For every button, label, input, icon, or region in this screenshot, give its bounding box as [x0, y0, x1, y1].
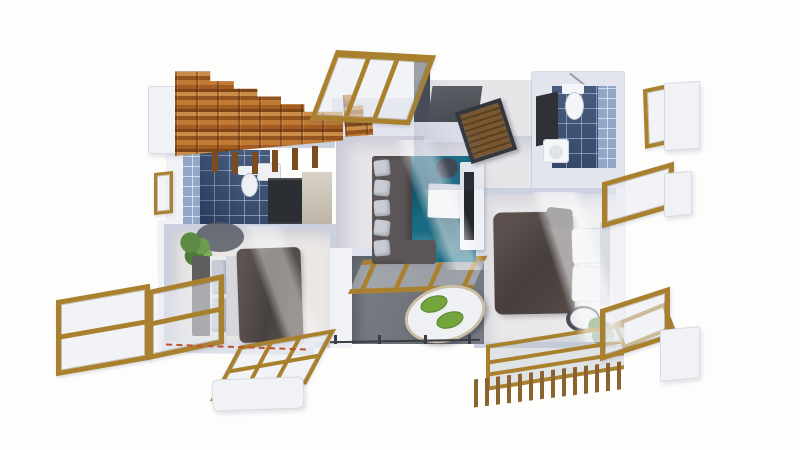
washbasin — [544, 140, 568, 162]
tv-screen — [464, 172, 474, 240]
shutter-panel-right-low — [660, 326, 700, 382]
stair-baluster — [312, 146, 318, 168]
window-mullion — [61, 319, 145, 339]
bathroom-tile-wall — [598, 86, 616, 168]
window-mullion — [153, 307, 219, 326]
window-mullion — [229, 354, 318, 374]
window-mullion — [372, 60, 399, 118]
stair-baluster — [272, 150, 278, 172]
bed-pillow-dark — [545, 207, 573, 230]
sofa-chaise — [402, 240, 436, 264]
window-mullion — [344, 59, 371, 117]
sofa-pillow — [373, 239, 390, 256]
panel-bottom-left — [211, 376, 304, 411]
shutter-panel-right-mid — [664, 171, 692, 218]
bed-duvet — [236, 247, 303, 343]
bathroom-top-right — [532, 72, 624, 192]
stair-baluster — [212, 150, 218, 172]
toilet-bowl — [565, 92, 584, 120]
window-frame-left-outer — [56, 284, 150, 377]
coffee-table — [427, 183, 462, 218]
stair-baluster — [252, 152, 258, 174]
railing-post — [334, 335, 337, 344]
bed-headboard — [600, 222, 610, 306]
bed-pillow — [571, 227, 602, 264]
railing-post — [378, 335, 381, 344]
sofa-pillow — [373, 219, 391, 237]
bed-pillow — [571, 265, 602, 302]
stair-baluster — [292, 148, 298, 170]
shutter-panel-right-top — [664, 81, 700, 152]
railing-post — [424, 335, 427, 344]
floorplan-render — [0, 0, 800, 450]
living-room — [370, 150, 490, 270]
vanity-counter — [536, 92, 558, 147]
stair-baluster — [232, 152, 238, 174]
sofa-pillow — [373, 199, 390, 216]
frame-small-left — [154, 171, 173, 215]
